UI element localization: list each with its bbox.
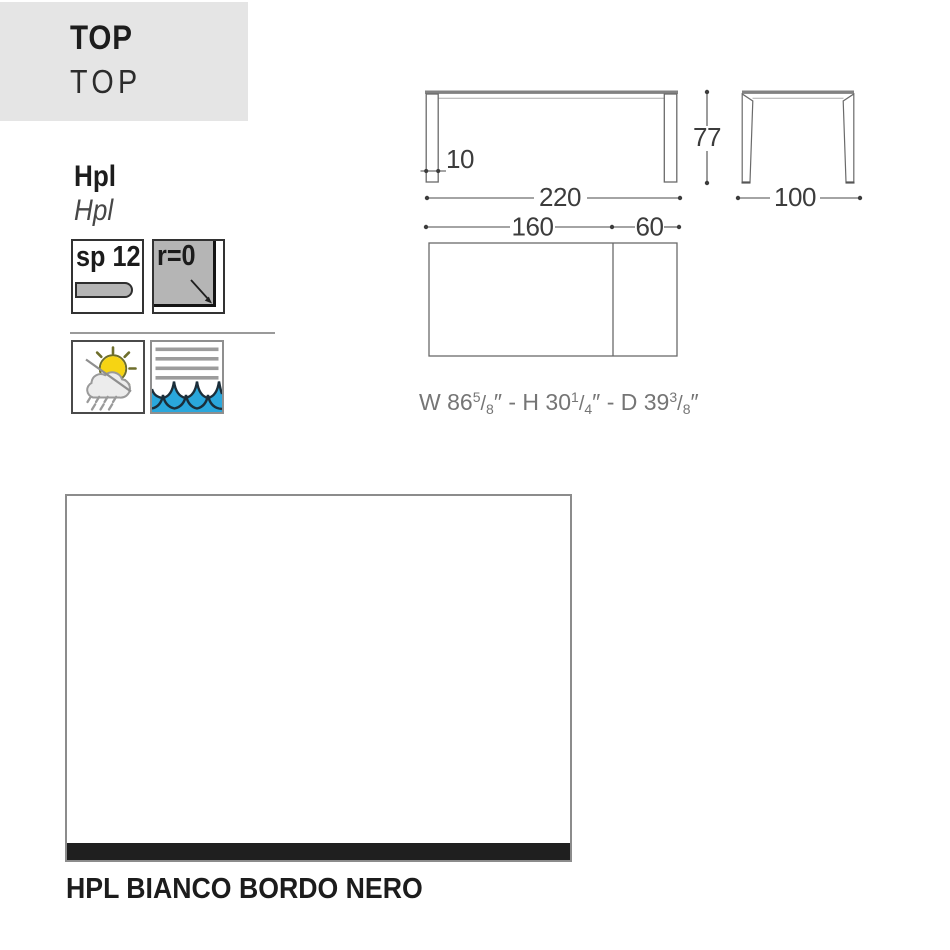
divider-line <box>70 332 275 334</box>
page-title: TOP <box>70 19 142 58</box>
thickness-label: sp 12 <box>76 241 150 274</box>
page-subtitle: TOP <box>70 63 152 101</box>
side-left-leg <box>742 94 753 182</box>
dim-top-extension-label: 60 <box>636 212 664 242</box>
material-name: Hpl <box>74 160 122 194</box>
dim-leg-thickness-label: 10 <box>446 144 474 174</box>
side-view-drawing <box>742 91 855 183</box>
imperial-dimensions: W 865/8″ - H 301/4″ - D 393/8″ <box>419 389 699 416</box>
rain-drops <box>88 397 117 410</box>
waves-icon-graphic <box>152 342 222 412</box>
dim-top-fixed-label: 160 <box>512 212 554 242</box>
thickness-bar-graphic <box>75 282 133 298</box>
radius-arrow-icon <box>154 241 223 312</box>
side-right-leg <box>843 94 854 182</box>
spec-sheet-page: { "header": { "title": "TOP", "subtitle"… <box>0 0 950 950</box>
dim-front-height: 77 <box>693 90 721 185</box>
sun-cloud-rain-icon <box>71 340 145 414</box>
finish-swatch <box>65 494 572 862</box>
dim-side-depth-label: 100 <box>774 182 816 212</box>
front-left-leg <box>426 94 438 182</box>
header-panel: TOP TOP <box>0 2 248 121</box>
weather-icon-graphic <box>73 342 143 412</box>
water-waves-icon <box>150 340 224 414</box>
dim-front-width: 220 <box>425 182 682 212</box>
stripes <box>156 348 219 380</box>
dim-front-height-label: 77 <box>693 122 721 152</box>
dim-side-depth: 100 <box>736 182 862 212</box>
swatch-black-edge <box>67 843 570 860</box>
sheet-thickness-icon: sp 12 <box>71 239 144 314</box>
dim-front-width-label: 220 <box>539 182 581 212</box>
material-name-italic: Hpl <box>74 194 119 228</box>
top-view-drawing <box>429 243 677 356</box>
finish-label: HPL BIANCO BORDO NERO <box>66 873 454 906</box>
front-right-leg <box>664 94 677 182</box>
corner-radius-icon: r=0 <box>152 239 225 314</box>
technical-drawing: 10 220 77 160 60 <box>400 75 880 385</box>
dim-top-sections: 160 60 <box>424 212 681 242</box>
